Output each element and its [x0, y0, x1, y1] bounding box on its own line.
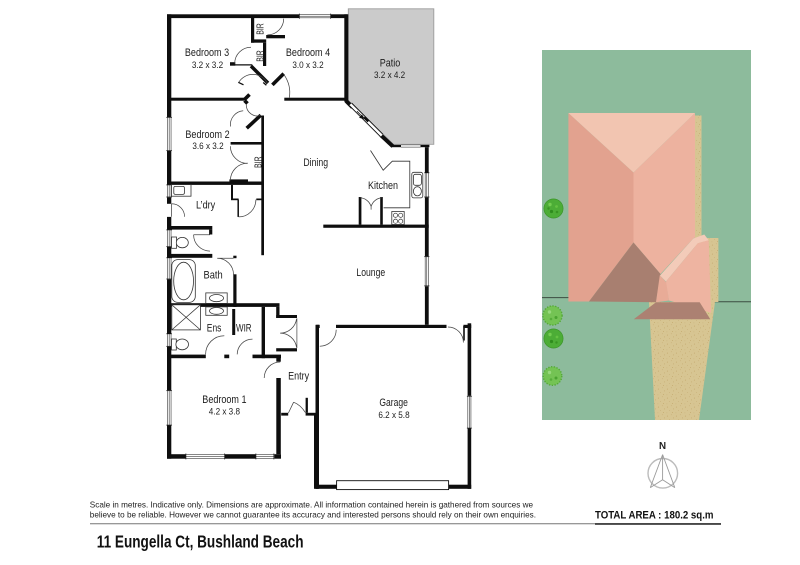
svg-text:Bath: Bath — [204, 270, 223, 282]
svg-text:6.2 x 5.8: 6.2 x 5.8 — [378, 409, 409, 420]
svg-text:WIR: WIR — [236, 322, 252, 334]
svg-text:Bedroom 1: Bedroom 1 — [202, 394, 246, 406]
svg-text:BIR: BIR — [253, 156, 264, 168]
svg-text:3.2 x 4.2: 3.2 x 4.2 — [374, 69, 405, 80]
svg-text:Entry: Entry — [288, 370, 309, 382]
svg-text:4.2 x 3.8: 4.2 x 3.8 — [209, 406, 240, 417]
svg-text:Ens: Ens — [207, 322, 222, 334]
svg-text:11 Eungella Ct, Bushland Beach: 11 Eungella Ct, Bushland Beach — [97, 531, 304, 551]
svg-text:Kitchen: Kitchen — [368, 180, 398, 192]
svg-text:Lounge: Lounge — [356, 267, 385, 279]
svg-text:Bedroom 3: Bedroom 3 — [185, 47, 229, 59]
svg-text:N: N — [659, 441, 666, 452]
svg-text:BIR: BIR — [256, 23, 267, 35]
svg-text:Dining: Dining — [303, 157, 328, 169]
svg-text:L’dry: L’dry — [196, 200, 216, 212]
svg-text:Patio: Patio — [380, 57, 401, 69]
svg-text:3.2 x 3.2: 3.2 x 3.2 — [192, 59, 223, 70]
svg-text:Garage: Garage — [379, 397, 408, 409]
svg-text:TOTAL AREA : 180.2 sq.m: TOTAL AREA : 180.2 sq.m — [595, 509, 714, 521]
svg-text:BIR: BIR — [256, 50, 267, 62]
svg-text:Scale in metres. Indicative on: Scale in metres. Indicative only. Dimens… — [90, 500, 534, 509]
svg-text:3.0 x 3.2: 3.0 x 3.2 — [292, 59, 323, 70]
svg-text:3.6 x 3.2: 3.6 x 3.2 — [192, 140, 223, 151]
svg-text:Bedroom 4: Bedroom 4 — [286, 47, 330, 59]
svg-text:believe to be reliable. Howeve: believe to be reliable. However we canno… — [90, 510, 536, 519]
